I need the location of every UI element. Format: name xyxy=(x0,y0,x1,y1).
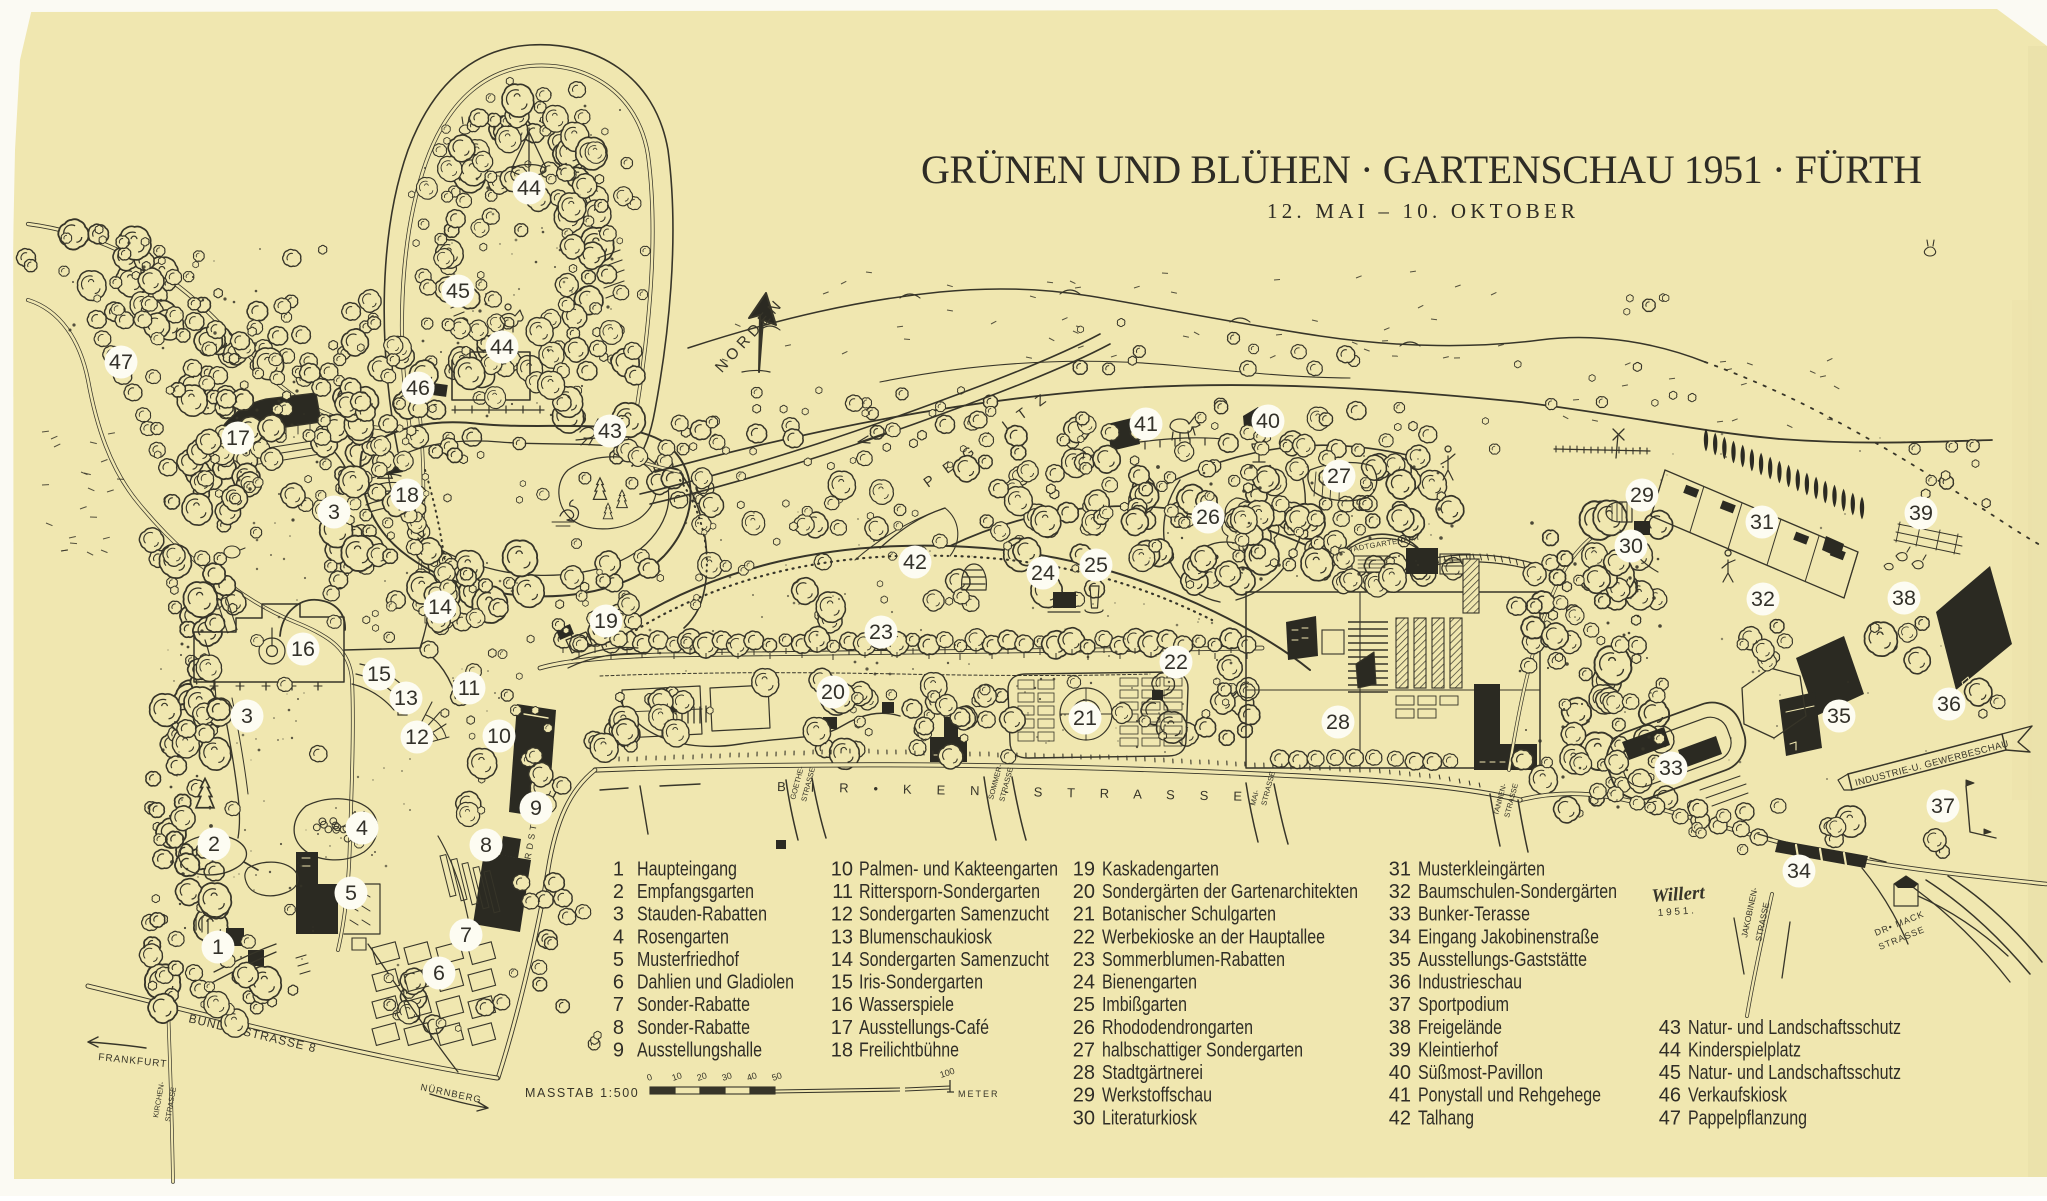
svg-text:Pappelpflanzung: Pappelpflanzung xyxy=(1688,1107,1807,1129)
svg-text:30: 30 xyxy=(1073,1107,1095,1129)
svg-text:25: 25 xyxy=(1084,553,1108,577)
svg-text:27: 27 xyxy=(1327,464,1351,488)
svg-text:24: 24 xyxy=(1073,972,1095,994)
svg-text:23: 23 xyxy=(1073,949,1095,971)
svg-text:2: 2 xyxy=(208,832,220,856)
svg-text:MASSTAB 1:500: MASSTAB 1:500 xyxy=(525,1086,639,1100)
svg-text:14: 14 xyxy=(428,595,452,619)
svg-text:37: 37 xyxy=(1931,794,1955,818)
svg-text:10: 10 xyxy=(831,859,853,881)
svg-text:9: 9 xyxy=(613,1040,624,1062)
svg-text:31: 31 xyxy=(1389,859,1411,881)
svg-text:45: 45 xyxy=(446,279,470,303)
svg-text:23: 23 xyxy=(869,620,893,644)
svg-text:44: 44 xyxy=(1659,1040,1681,1062)
svg-text:Sondergarten Samenzucht: Sondergarten Samenzucht xyxy=(859,904,1049,926)
svg-text:Dahlien und Gladiolen: Dahlien und Gladiolen xyxy=(637,972,794,994)
svg-text:19: 19 xyxy=(594,609,618,633)
svg-text:5: 5 xyxy=(345,881,357,905)
svg-text:18: 18 xyxy=(831,1040,853,1062)
svg-text:15: 15 xyxy=(367,662,391,686)
svg-text:41: 41 xyxy=(1389,1085,1411,1107)
svg-text:Sondergarten Samenzucht: Sondergarten Samenzucht xyxy=(859,949,1049,971)
svg-text:14: 14 xyxy=(831,949,853,971)
svg-text:Kleintierhof: Kleintierhof xyxy=(1418,1040,1498,1062)
svg-text:Freilichtbühne: Freilichtbühne xyxy=(859,1040,959,1062)
svg-text:8: 8 xyxy=(613,1017,624,1039)
svg-text:35: 35 xyxy=(1827,704,1851,728)
svg-text:16: 16 xyxy=(291,637,315,661)
svg-text:43: 43 xyxy=(1659,1017,1681,1039)
svg-text:38: 38 xyxy=(1892,586,1916,610)
svg-text:19: 19 xyxy=(1073,859,1095,881)
svg-text:29: 29 xyxy=(1630,483,1654,507)
svg-text:Literaturkiosk: Literaturkiosk xyxy=(1102,1107,1198,1129)
svg-text:25: 25 xyxy=(1073,994,1095,1016)
svg-text:Rosengarten: Rosengarten xyxy=(637,926,729,948)
svg-text:29: 29 xyxy=(1073,1085,1095,1107)
svg-text:46: 46 xyxy=(406,376,430,400)
svg-text:Süßmost-Pavillon: Süßmost-Pavillon xyxy=(1418,1062,1543,1084)
svg-text:47: 47 xyxy=(1659,1107,1681,1129)
svg-text:Bunker-Terasse: Bunker-Terasse xyxy=(1418,904,1530,926)
svg-text:Ausstellungshalle: Ausstellungshalle xyxy=(637,1040,762,1062)
svg-text:46: 46 xyxy=(1659,1085,1681,1107)
svg-text:Freigelände: Freigelände xyxy=(1418,1017,1502,1039)
svg-text:39: 39 xyxy=(1389,1040,1411,1062)
svg-text:Ponystall und Rehgehege: Ponystall und Rehgehege xyxy=(1418,1085,1601,1107)
svg-text:Natur- und Landschaftsschutz: Natur- und Landschaftsschutz xyxy=(1688,1017,1901,1039)
svg-text:37: 37 xyxy=(1389,994,1411,1016)
svg-text:7: 7 xyxy=(460,923,472,947)
svg-text:36: 36 xyxy=(1937,692,1961,716)
svg-text:4: 4 xyxy=(613,926,624,948)
svg-text:22: 22 xyxy=(1073,926,1095,948)
svg-text:Palmen- und Kakteengarten: Palmen- und Kakteengarten xyxy=(859,859,1058,881)
svg-text:Rittersporn-Sondergarten: Rittersporn-Sondergarten xyxy=(859,881,1040,903)
svg-text:20: 20 xyxy=(821,680,845,704)
svg-text:34: 34 xyxy=(1787,859,1811,883)
svg-text:39: 39 xyxy=(1909,501,1933,525)
svg-text:35: 35 xyxy=(1389,949,1411,971)
svg-text:6: 6 xyxy=(613,972,624,994)
svg-text:Iris-Sondergarten: Iris-Sondergarten xyxy=(859,972,983,994)
svg-text:18: 18 xyxy=(395,483,419,507)
svg-text:Stauden-Rabatten: Stauden-Rabatten xyxy=(637,904,767,926)
svg-text:17: 17 xyxy=(226,426,250,450)
svg-text:Talhang: Talhang xyxy=(1418,1107,1474,1129)
svg-text:6: 6 xyxy=(433,961,445,985)
svg-text:42: 42 xyxy=(903,550,927,574)
svg-text:Natur- und Landschaftsschutz: Natur- und Landschaftsschutz xyxy=(1688,1062,1901,1084)
svg-text:3: 3 xyxy=(241,704,253,728)
svg-text:15: 15 xyxy=(831,972,853,994)
svg-text:halbschattiger Sondergarten: halbschattiger Sondergarten xyxy=(1102,1040,1303,1062)
svg-text:Ausstellungs-Café: Ausstellungs-Café xyxy=(859,1017,989,1039)
svg-text:13: 13 xyxy=(394,686,418,710)
svg-text:30: 30 xyxy=(1619,534,1643,558)
svg-text:Sommerblumen-Rabatten: Sommerblumen-Rabatten xyxy=(1102,949,1285,971)
svg-text:41: 41 xyxy=(1134,412,1158,436)
svg-text:31: 31 xyxy=(1750,510,1774,534)
svg-text:3: 3 xyxy=(613,904,624,926)
svg-text:Sondergärten der Gartenarchite: Sondergärten der Gartenarchitekten xyxy=(1102,881,1358,903)
svg-text:13: 13 xyxy=(831,926,853,948)
svg-text:11: 11 xyxy=(458,676,480,700)
svg-text:33: 33 xyxy=(1389,904,1411,926)
svg-text:12: 12 xyxy=(831,904,853,926)
svg-text:16: 16 xyxy=(831,994,853,1016)
svg-text:Industrieschau: Industrieschau xyxy=(1418,972,1522,994)
svg-text:32: 32 xyxy=(1389,881,1411,903)
svg-text:32: 32 xyxy=(1751,587,1775,611)
svg-text:12: 12 xyxy=(405,725,429,749)
svg-text:38: 38 xyxy=(1389,1017,1411,1039)
svg-text:36: 36 xyxy=(1389,972,1411,994)
svg-text:Musterkleingärten: Musterkleingärten xyxy=(1418,859,1545,881)
svg-text:Sportpodium: Sportpodium xyxy=(1418,994,1509,1016)
svg-text:GRÜNEN UND BLÜHEN · GARTENSCHA: GRÜNEN UND BLÜHEN · GARTENSCHAU 1951 · F… xyxy=(921,147,1922,192)
svg-text:28: 28 xyxy=(1073,1062,1095,1084)
svg-text:Bienengarten: Bienengarten xyxy=(1102,972,1197,994)
svg-text:Blumenschaukiosk: Blumenschaukiosk xyxy=(859,926,993,948)
svg-text:Kinderspielplatz: Kinderspielplatz xyxy=(1688,1040,1801,1062)
svg-text:21: 21 xyxy=(1073,706,1097,730)
svg-text:27: 27 xyxy=(1073,1040,1095,1062)
svg-text:Kaskadengarten: Kaskadengarten xyxy=(1102,859,1219,881)
svg-text:26: 26 xyxy=(1073,1017,1095,1039)
svg-text:20: 20 xyxy=(1073,881,1095,903)
svg-text:22: 22 xyxy=(1164,650,1188,674)
svg-text:34: 34 xyxy=(1389,926,1411,948)
svg-text:47: 47 xyxy=(109,350,133,374)
svg-text:44: 44 xyxy=(490,335,514,359)
svg-text:40: 40 xyxy=(1389,1062,1411,1084)
svg-text:Sonder-Rabatte: Sonder-Rabatte xyxy=(637,994,750,1016)
svg-text:Werkstoffschau: Werkstoffschau xyxy=(1102,1085,1212,1107)
svg-text:11: 11 xyxy=(832,881,853,903)
svg-text:24: 24 xyxy=(1031,561,1055,585)
svg-text:Willert: Willert xyxy=(1651,882,1706,907)
svg-text:Baumschulen-Sondergärten: Baumschulen-Sondergärten xyxy=(1418,881,1617,903)
svg-text:Verkaufskiosk: Verkaufskiosk xyxy=(1688,1085,1788,1107)
svg-text:21: 21 xyxy=(1073,904,1095,926)
svg-text:5: 5 xyxy=(613,949,624,971)
svg-text:7: 7 xyxy=(613,994,624,1016)
svg-text:Rhododendrongarten: Rhododendrongarten xyxy=(1102,1017,1253,1039)
svg-text:4: 4 xyxy=(356,816,368,840)
svg-text:10: 10 xyxy=(487,724,511,748)
svg-text:Haupteingang: Haupteingang xyxy=(637,859,737,881)
svg-text:2: 2 xyxy=(613,881,624,903)
svg-text:8: 8 xyxy=(480,833,492,857)
svg-text:40: 40 xyxy=(1256,409,1280,433)
svg-text:26: 26 xyxy=(1196,505,1220,529)
svg-text:33: 33 xyxy=(1659,756,1683,780)
svg-text:44: 44 xyxy=(517,176,541,200)
svg-text:Stadtgärtnerei: Stadtgärtnerei xyxy=(1102,1062,1203,1084)
svg-text:Botanischer Schulgarten: Botanischer Schulgarten xyxy=(1102,904,1276,926)
svg-text:9: 9 xyxy=(530,796,542,820)
svg-text:1: 1 xyxy=(613,859,624,881)
svg-text:Empfangsgarten: Empfangsgarten xyxy=(637,881,754,903)
svg-text:3: 3 xyxy=(328,500,340,524)
svg-text:METER: METER xyxy=(958,1089,1000,1099)
svg-text:17: 17 xyxy=(831,1017,853,1039)
svg-text:28: 28 xyxy=(1326,710,1350,734)
svg-text:Wasserspiele: Wasserspiele xyxy=(859,994,954,1016)
svg-text:Eingang Jakobinenstraße: Eingang Jakobinenstraße xyxy=(1418,926,1599,948)
svg-text:45: 45 xyxy=(1659,1062,1681,1084)
svg-text:Imbißgarten: Imbißgarten xyxy=(1102,994,1187,1016)
svg-text:Sonder-Rabatte: Sonder-Rabatte xyxy=(637,1017,750,1039)
svg-text:Ausstellungs-Gaststätte: Ausstellungs-Gaststätte xyxy=(1418,949,1587,971)
svg-text:Werbekioske an der Hauptallee: Werbekioske an der Hauptallee xyxy=(1102,926,1325,948)
svg-text:43: 43 xyxy=(598,419,622,443)
svg-text:42: 42 xyxy=(1389,1107,1411,1129)
svg-text:1: 1 xyxy=(212,935,224,959)
svg-text:Musterfriedhof: Musterfriedhof xyxy=(637,949,739,971)
